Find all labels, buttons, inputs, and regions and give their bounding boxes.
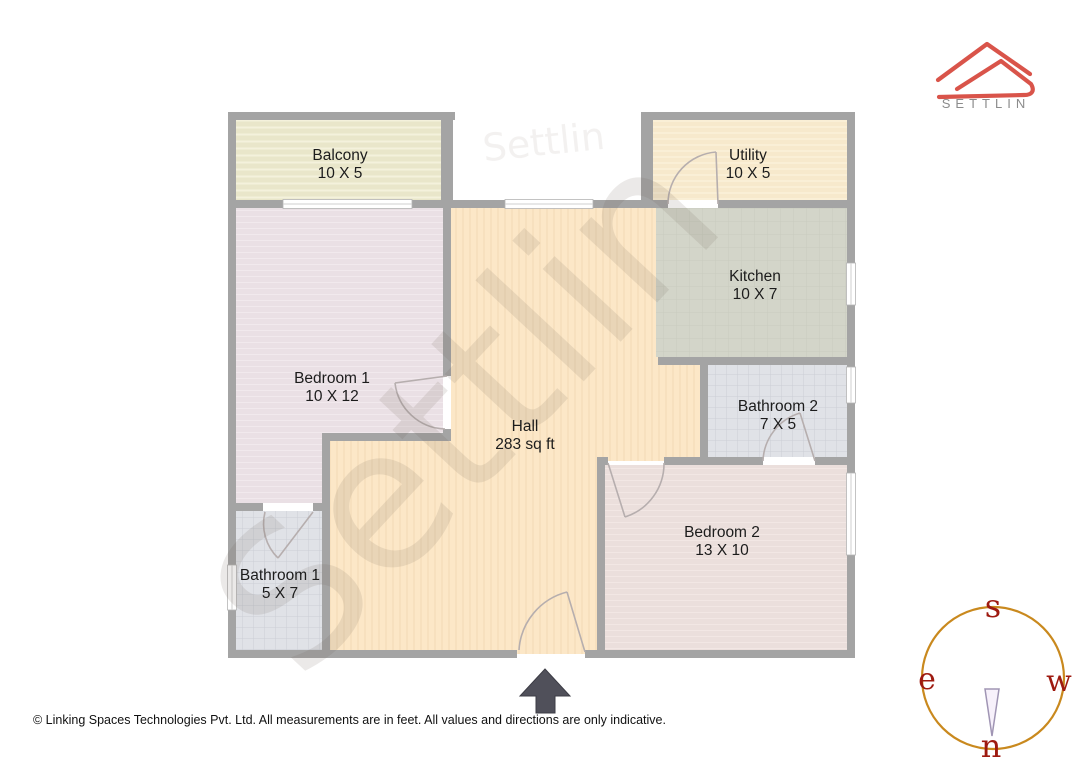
compass-label-south: s	[985, 587, 1001, 625]
room-dims-bedroom2: 13 X 10	[695, 542, 749, 559]
room-label-utility: Utility	[729, 147, 767, 164]
wall-bathroom2-left	[700, 357, 708, 465]
room-dims-bathroom2: 7 X 5	[760, 416, 796, 433]
wall-top-balcony	[228, 112, 455, 120]
room-label-bathroom2: Bathroom 2	[738, 398, 818, 415]
compass-rose: s e w n	[918, 587, 1072, 764]
wall-top-utility	[641, 112, 855, 120]
room-dims-hall: 283 sq ft	[495, 436, 555, 453]
room-dims-utility: 10 X 5	[726, 165, 771, 182]
wall-balcony-right	[441, 112, 453, 200]
wall-bedroom2-left	[597, 457, 605, 658]
room-dims-bedroom1: 10 X 12	[305, 388, 358, 405]
floor-plan-page: Settlin Settlin Balcony 10 X 5 Utility 1…	[0, 0, 1080, 764]
wall-bedroom2-top-b	[664, 457, 763, 465]
copyright-text: © Linking Spaces Technologies Pvt. Ltd. …	[33, 713, 666, 727]
room-label-bedroom1: Bedroom 1	[294, 370, 370, 387]
compass-label-east: e	[918, 662, 936, 697]
room-label-kitchen: Kitchen	[729, 268, 781, 285]
room-label-bathroom1: Bathroom 1	[240, 567, 320, 584]
settlin-logo-icon	[938, 44, 1033, 97]
wall-kitchen-bottom	[658, 357, 855, 365]
window-kitchen	[847, 263, 856, 305]
compass-label-west: w	[1046, 664, 1072, 699]
wall-bottom-right	[585, 650, 855, 658]
window-bedroom2	[847, 473, 856, 555]
brand-name: SETTLIN	[942, 96, 1030, 111]
wall-utility-bottom-b	[718, 200, 855, 208]
window-bathroom2	[847, 367, 856, 403]
room-label-balcony: Balcony	[312, 147, 367, 164]
room-label-bedroom2: Bedroom 2	[684, 524, 760, 541]
room-label-hall: Hall	[512, 418, 539, 435]
brand-logo: SETTLIN	[938, 44, 1033, 111]
window-balcony	[283, 200, 412, 209]
wall-bedroom2-top-c	[815, 457, 855, 465]
compass-label-north: n	[981, 727, 1002, 764]
floor-plan-canvas: Settlin Settlin Balcony 10 X 5 Utility 1…	[0, 0, 1080, 764]
room-dims-kitchen: 10 X 7	[733, 286, 778, 303]
room-dims-bathroom1: 5 X 7	[262, 585, 298, 602]
north-arrow-icon	[520, 669, 570, 713]
room-dims-balcony: 10 X 5	[318, 165, 363, 182]
